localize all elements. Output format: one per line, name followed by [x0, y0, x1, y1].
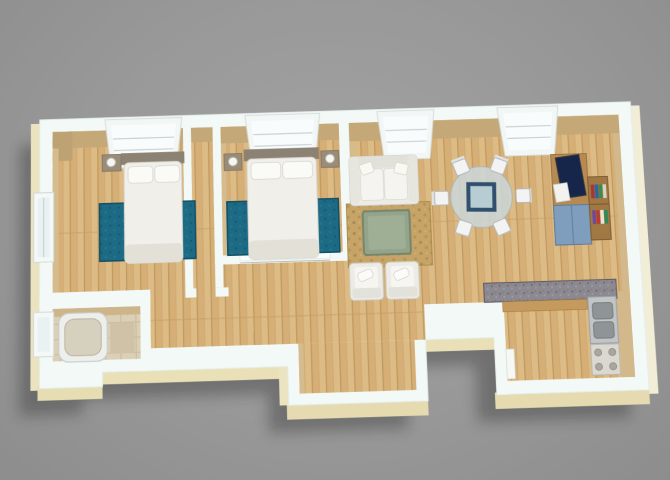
- kitchen-sink-basin-2: [593, 322, 614, 339]
- floor-plan-scene: [0, 0, 670, 480]
- bookshelf-divider: [589, 204, 609, 205]
- bathroom-window-glass: [38, 317, 50, 352]
- bedroom2-pillow-left: [251, 162, 281, 180]
- armchair-2-back: [388, 286, 418, 297]
- coffee-table-glass: [368, 215, 406, 250]
- stove-burner-1: [594, 349, 601, 356]
- kitchen-stove: [591, 344, 621, 375]
- bath-mat: [110, 322, 134, 353]
- desk-papers: [553, 183, 570, 203]
- stove-burner-4: [609, 363, 617, 370]
- floor-plan-tilt-wrapper: [0, 8, 670, 480]
- sofa-pillow-right: [394, 162, 409, 175]
- floor-plan-shape-layer: [19, 102, 660, 441]
- bedroom1-pillow-right: [155, 165, 180, 182]
- living-roof-window-2-glass: [503, 112, 554, 150]
- bedroom1-lamp: [107, 158, 116, 167]
- closet-north-wall-face: [191, 127, 213, 142]
- dining-chair-west: [434, 191, 449, 205]
- bedroom1-pillow-left: [128, 166, 153, 183]
- entry-nook-floor: [298, 340, 416, 394]
- bedroom2-duvet-foot: [249, 239, 319, 260]
- kitchen-door: [506, 349, 516, 379]
- floor-plan-render: [0, 8, 670, 480]
- armchair-1-back: [352, 288, 381, 299]
- wall-kitchen-lower: [496, 381, 508, 395]
- dining-chair-east: [516, 189, 531, 203]
- wall-closet-hall: [215, 287, 228, 296]
- wall-bathroom-hall-upper: [140, 299, 150, 311]
- wall-bathroom-hall-lower: [141, 338, 151, 371]
- bedroom1-duvet-foot: [125, 243, 183, 264]
- kitchen-sink-basin-1: [592, 302, 613, 319]
- dining-table-top: [470, 186, 492, 208]
- stove-burner-2: [609, 348, 617, 355]
- bathtub-basin: [65, 318, 101, 356]
- bedroom2-lamp-left: [228, 157, 237, 166]
- sofa-arm-right: [407, 155, 419, 202]
- bedroom2-pillow-right: [283, 161, 313, 179]
- sofa-arm-left: [349, 157, 361, 204]
- bedroom2-lamp-right: [325, 154, 334, 163]
- living-roof-window-1-glass: [383, 116, 430, 154]
- outer-wall-face-bump-west: [279, 366, 289, 405]
- stove-burner-3: [595, 363, 603, 370]
